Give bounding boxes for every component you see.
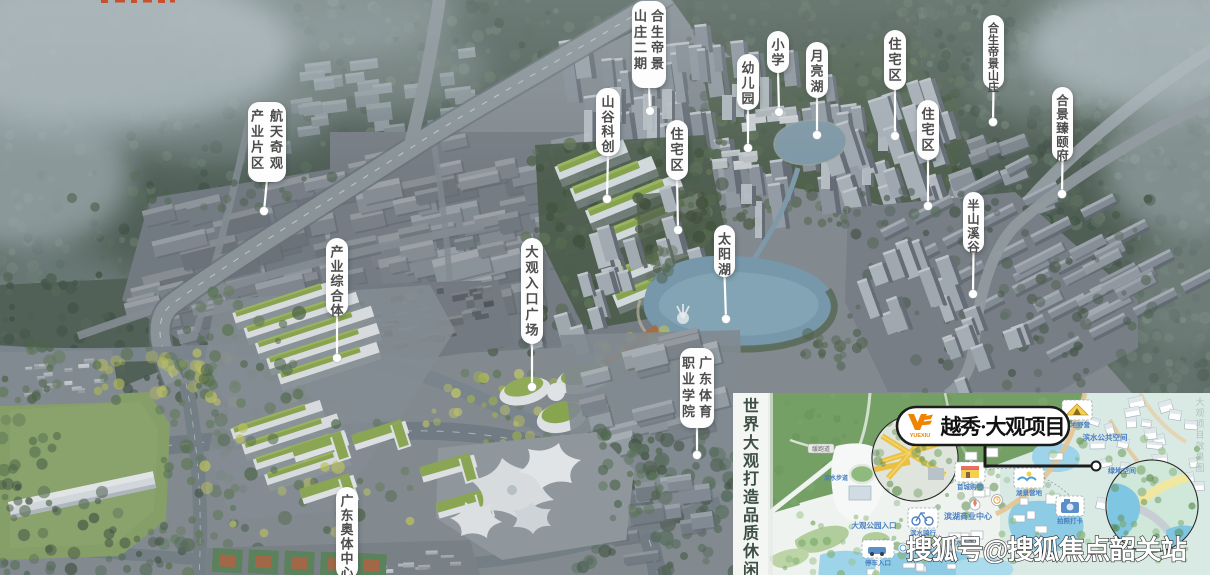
svg-text:体: 体 bbox=[330, 302, 344, 318]
svg-text:天: 天 bbox=[270, 124, 284, 139]
svg-text:拍照打卡: 拍照打卡 bbox=[1057, 516, 1084, 525]
svg-text:院: 院 bbox=[682, 404, 695, 419]
svg-text:业: 业 bbox=[330, 259, 343, 274]
svg-text:谷: 谷 bbox=[967, 239, 980, 254]
svg-text:项: 项 bbox=[1195, 419, 1204, 429]
svg-text:合: 合 bbox=[988, 21, 1000, 35]
svg-text:质: 质 bbox=[743, 524, 759, 543]
svg-text:合: 合 bbox=[1056, 93, 1069, 108]
svg-text:广: 广 bbox=[699, 355, 712, 370]
svg-text:综: 综 bbox=[330, 273, 344, 289]
svg-text:期: 期 bbox=[634, 56, 647, 71]
svg-text:合: 合 bbox=[651, 8, 665, 24]
svg-text:效: 效 bbox=[1195, 440, 1204, 451]
svg-text:二: 二 bbox=[634, 40, 647, 55]
svg-text:目: 目 bbox=[1195, 430, 1204, 440]
svg-text:东: 东 bbox=[699, 372, 712, 387]
svg-text:山: 山 bbox=[634, 9, 647, 24]
svg-text:场: 场 bbox=[525, 323, 538, 338]
svg-text:中: 中 bbox=[340, 551, 353, 566]
svg-text:图: 图 bbox=[1195, 463, 1204, 473]
svg-text:观: 观 bbox=[1195, 408, 1204, 418]
svg-text:区: 区 bbox=[921, 138, 934, 153]
svg-text:界: 界 bbox=[743, 416, 759, 434]
svg-text:入: 入 bbox=[525, 276, 539, 291]
svg-text:体: 体 bbox=[340, 537, 354, 552]
svg-text:区: 区 bbox=[251, 155, 264, 170]
svg-text:半: 半 bbox=[967, 198, 979, 213]
svg-text:园: 园 bbox=[741, 91, 754, 106]
svg-text:臻: 臻 bbox=[1056, 121, 1069, 136]
svg-text:观: 观 bbox=[525, 260, 539, 275]
svg-text:体: 体 bbox=[699, 388, 713, 403]
svg-text:住: 住 bbox=[888, 36, 901, 52]
svg-text:宅: 宅 bbox=[670, 141, 683, 157]
svg-text:品: 品 bbox=[743, 506, 759, 524]
svg-text:生: 生 bbox=[651, 23, 664, 39]
svg-text:区: 区 bbox=[888, 68, 901, 83]
svg-text:世: 世 bbox=[743, 398, 759, 416]
svg-text:心: 心 bbox=[340, 565, 353, 575]
svg-text:学: 学 bbox=[771, 52, 784, 68]
svg-text:颐: 颐 bbox=[1056, 134, 1069, 149]
svg-text:首城购物: 首城购物 bbox=[957, 482, 984, 491]
svg-text:谷: 谷 bbox=[601, 109, 615, 124]
svg-text:帝: 帝 bbox=[651, 39, 664, 55]
svg-text:府: 府 bbox=[1056, 148, 1069, 163]
svg-text:宅: 宅 bbox=[888, 51, 901, 67]
svg-text:景: 景 bbox=[651, 56, 664, 71]
svg-text:滨水公共空间: 滨水公共空间 bbox=[1083, 432, 1128, 442]
svg-text:广: 广 bbox=[525, 306, 538, 322]
svg-text:湖: 湖 bbox=[718, 262, 731, 277]
svg-text:生: 生 bbox=[988, 33, 999, 47]
svg-text:合: 合 bbox=[330, 287, 344, 303]
svg-text:产: 产 bbox=[330, 244, 343, 260]
svg-text:科: 科 bbox=[601, 123, 615, 139]
svg-text:打: 打 bbox=[743, 469, 759, 488]
svg-text:片: 片 bbox=[251, 139, 264, 155]
svg-text:创: 创 bbox=[600, 138, 614, 154]
svg-text:宅: 宅 bbox=[921, 121, 934, 137]
svg-text:越秀·大观项目: 越秀·大观项目 bbox=[940, 415, 1066, 439]
svg-text:溪: 溪 bbox=[967, 226, 980, 241]
svg-text:绿地空间: 绿地空间 bbox=[1108, 466, 1136, 475]
svg-text:山: 山 bbox=[988, 68, 999, 82]
svg-text:阳: 阳 bbox=[718, 247, 731, 262]
svg-text:太: 太 bbox=[717, 231, 732, 246]
svg-text:住: 住 bbox=[921, 106, 934, 122]
svg-text:住: 住 bbox=[670, 126, 683, 142]
svg-text:庄: 庄 bbox=[634, 23, 647, 39]
svg-text:搜狐号@搜狐焦点韶关站: 搜狐号@搜狐焦点韶关站 bbox=[906, 535, 1186, 565]
svg-text:休: 休 bbox=[742, 542, 760, 561]
svg-text:区: 区 bbox=[670, 158, 683, 173]
svg-text:亮: 亮 bbox=[810, 64, 823, 79]
svg-text:幼: 幼 bbox=[741, 60, 754, 75]
svg-text:缓跑道: 缓跑道 bbox=[812, 445, 830, 453]
svg-text:大: 大 bbox=[525, 244, 539, 260]
svg-text:湖: 湖 bbox=[810, 79, 823, 94]
svg-text:果: 果 bbox=[1195, 452, 1204, 462]
svg-text:帝: 帝 bbox=[988, 45, 999, 59]
svg-text:育: 育 bbox=[699, 404, 712, 419]
svg-text:大观公园入口: 大观公园入口 bbox=[852, 520, 897, 530]
svg-text:业: 业 bbox=[251, 124, 264, 139]
svg-text:产: 产 bbox=[251, 108, 264, 124]
svg-text:造: 造 bbox=[743, 487, 760, 506]
svg-text:景: 景 bbox=[987, 58, 999, 71]
svg-text:大: 大 bbox=[1195, 396, 1204, 407]
svg-text:职: 职 bbox=[682, 355, 695, 370]
svg-text:大: 大 bbox=[743, 433, 759, 452]
svg-text:航: 航 bbox=[270, 108, 284, 124]
svg-text:滨水步道: 滨水步道 bbox=[824, 474, 848, 482]
svg-text:庄: 庄 bbox=[988, 80, 999, 94]
svg-text:湖景营地: 湖景营地 bbox=[1016, 488, 1043, 497]
svg-text:景: 景 bbox=[1055, 108, 1069, 122]
svg-text:山: 山 bbox=[967, 212, 979, 227]
svg-text:学: 学 bbox=[682, 388, 695, 403]
svg-text:山: 山 bbox=[601, 95, 614, 110]
svg-text:滨湖商业中心: 滨湖商业中心 bbox=[944, 511, 992, 521]
svg-text:口: 口 bbox=[525, 291, 538, 306]
svg-text:广: 广 bbox=[340, 493, 353, 508]
svg-text:停车入口: 停车入口 bbox=[865, 558, 891, 567]
svg-text:YUEXIU: YUEXIU bbox=[910, 433, 931, 439]
svg-text:观: 观 bbox=[270, 155, 284, 170]
svg-text:闲: 闲 bbox=[743, 560, 759, 575]
svg-text:儿: 儿 bbox=[740, 76, 754, 91]
svg-text:奇: 奇 bbox=[270, 139, 283, 155]
svg-text:业: 业 bbox=[682, 372, 695, 387]
svg-text:东: 东 bbox=[340, 508, 353, 523]
svg-text:观: 观 bbox=[743, 452, 759, 470]
svg-text:月: 月 bbox=[809, 48, 823, 63]
svg-text:小: 小 bbox=[771, 38, 785, 53]
svg-text:奥: 奥 bbox=[340, 522, 354, 537]
